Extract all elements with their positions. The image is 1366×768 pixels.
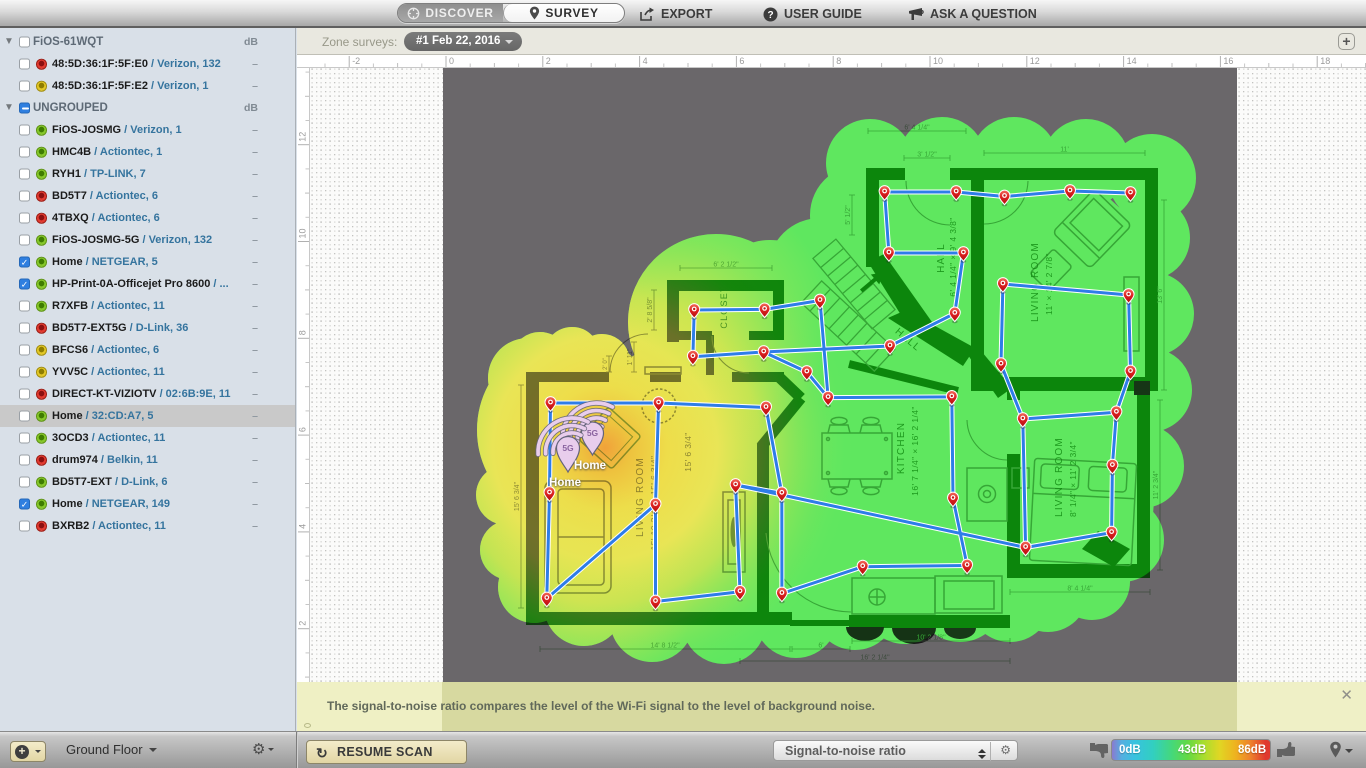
svg-text:5' 1/2": 5' 1/2"	[845, 205, 852, 225]
svg-text:8' 4 1/4": 8' 4 1/4"	[1067, 586, 1093, 593]
svg-text:10: 10	[298, 228, 308, 238]
svg-text:15' 6 3/4": 15' 6 3/4"	[683, 432, 693, 471]
svg-text:12: 12	[1030, 56, 1040, 66]
svg-text:14: 14	[1127, 56, 1137, 66]
svg-text:3' 1/2": 3' 1/2"	[917, 152, 937, 159]
svg-text:11': 11'	[1060, 147, 1069, 154]
svg-text:8: 8	[298, 330, 308, 335]
svg-text:?: ?	[767, 10, 773, 21]
svg-text:6' 4 1/4": 6' 4 1/4"	[904, 125, 930, 132]
svg-text:2: 2	[546, 56, 551, 66]
svg-text:CLOSET: CLOSET	[719, 285, 729, 328]
svg-text:10' 2 1/8": 10' 2 1/8"	[916, 635, 946, 642]
svg-text:LIVING ROOM: LIVING ROOM	[1054, 437, 1065, 517]
svg-text:LIVING ROOM: LIVING ROOM	[1030, 242, 1041, 322]
svg-text:-2: -2	[352, 56, 360, 66]
svg-text:1' 11": 1' 11"	[627, 348, 634, 365]
svg-text:HALL: HALL	[936, 243, 947, 273]
svg-text:Home: Home	[574, 460, 606, 472]
svg-text:11' × 14' 2 7/8": 11' × 14' 2 7/8"	[1044, 253, 1054, 315]
svg-text:2: 2	[298, 621, 308, 626]
svg-text:KITCHEN: KITCHEN	[896, 422, 907, 474]
svg-text:16' 7 1/4" × 16' 2 1/4": 16' 7 1/4" × 16' 2 1/4"	[910, 406, 920, 496]
svg-text:15' 6 3/4": 15' 6 3/4"	[514, 481, 521, 511]
svg-text:5G: 5G	[562, 443, 574, 453]
svg-text:8' 1/4" × 11' 2 3/4": 8' 1/4" × 11' 2 3/4"	[1068, 441, 1078, 517]
svg-text:18: 18	[1320, 56, 1330, 66]
svg-text:6: 6	[298, 427, 308, 432]
svg-text:LIVING ROOM: LIVING ROOM	[635, 457, 646, 537]
svg-text:4: 4	[298, 524, 308, 529]
svg-text:8: 8	[836, 56, 841, 66]
svg-text:6': 6'	[818, 643, 823, 650]
svg-text:11' 2 3/4": 11' 2 3/4"	[1153, 470, 1160, 499]
svg-text:0: 0	[449, 56, 454, 66]
svg-text:2' 0": 2' 0"	[603, 358, 609, 370]
svg-text:12: 12	[298, 132, 308, 142]
svg-text:10: 10	[933, 56, 943, 66]
svg-text:5G: 5G	[587, 428, 599, 438]
svg-text:13' 6": 13' 6"	[1157, 286, 1164, 304]
svg-text:14' 8 1/2": 14' 8 1/2"	[650, 643, 680, 650]
svg-text:6: 6	[739, 56, 744, 66]
svg-text:16' 2 1/4": 16' 2 1/4"	[860, 655, 890, 662]
svg-text:2' 8 5/8": 2' 8 5/8"	[647, 297, 654, 323]
svg-text:Home: Home	[549, 477, 581, 489]
svg-text:6' 2 1/2": 6' 2 1/2"	[713, 262, 739, 269]
svg-text:16: 16	[1223, 56, 1233, 66]
svg-text:4: 4	[643, 56, 648, 66]
